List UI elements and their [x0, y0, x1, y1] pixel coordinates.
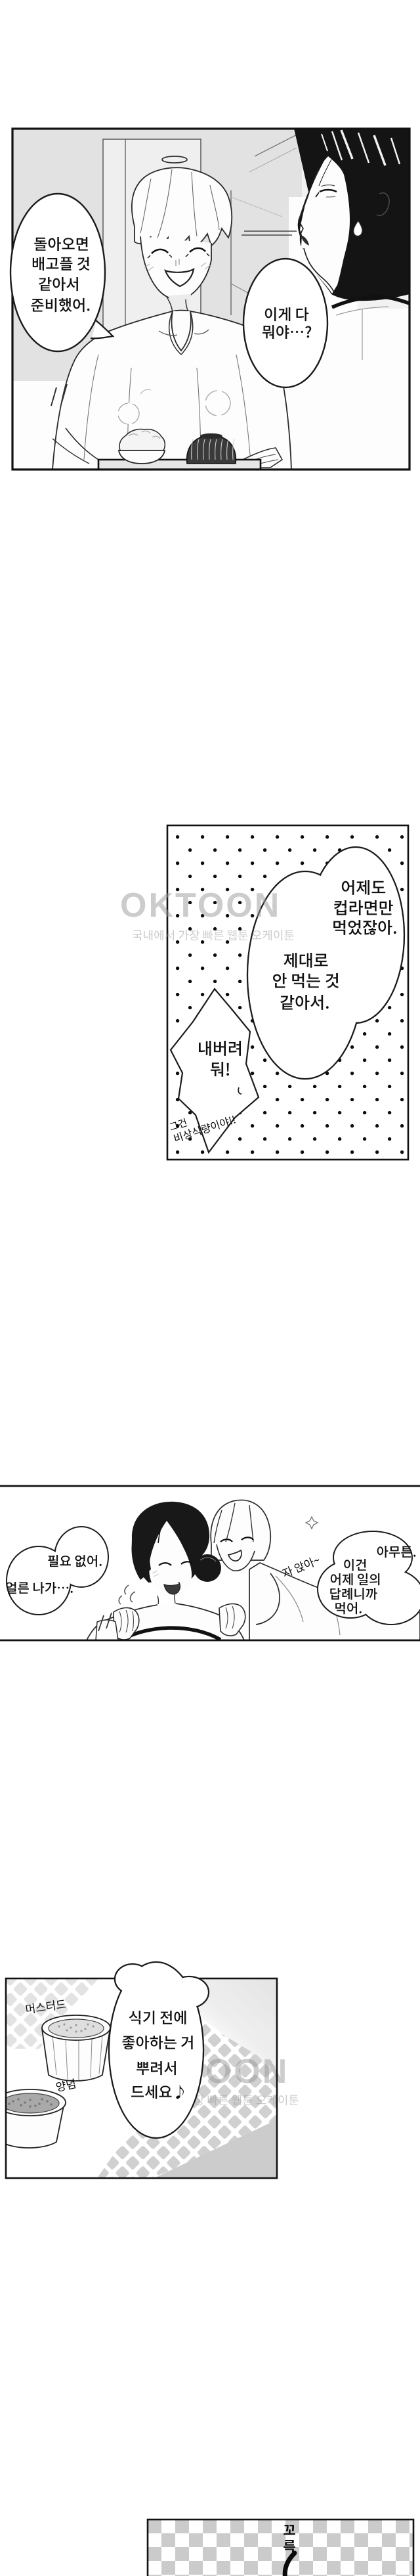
svg-text:OKTOON: OKTOON	[120, 886, 281, 925]
